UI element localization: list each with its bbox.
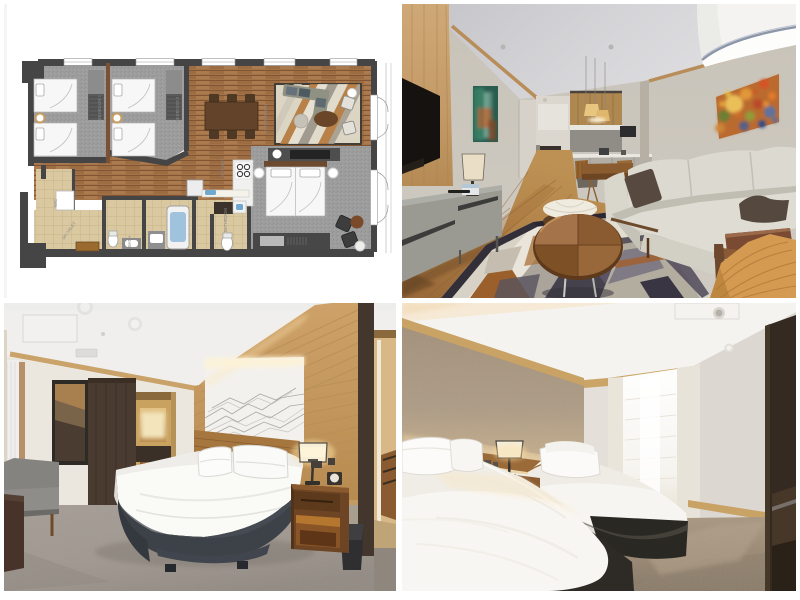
svg-text:BEDROOM 1: BEDROOM 1: [97, 94, 102, 120]
svg-text:BATH: BATH: [127, 236, 132, 247]
svg-text:BATHROOM: BATHROOM: [223, 208, 228, 232]
svg-text:BEDROOM 2: BEDROOM 2: [175, 96, 180, 122]
svg-text:LIVING/DINING: LIVING/DINING: [263, 103, 268, 133]
svg-text:WIC: WIC: [53, 199, 58, 207]
svg-text:KITCHEN: KITCHEN: [220, 159, 225, 177]
